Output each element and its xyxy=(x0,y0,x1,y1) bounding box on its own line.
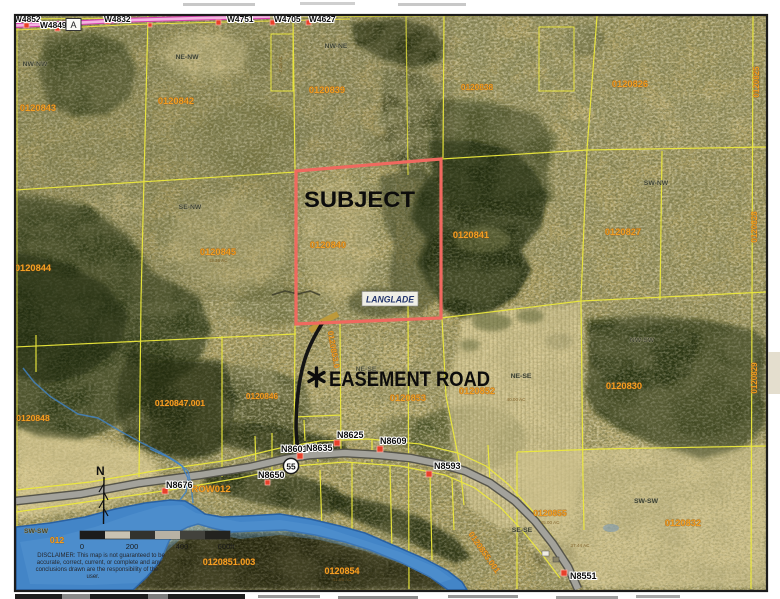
svg-text:37.44 AC: 37.44 AC xyxy=(571,543,591,548)
svg-text:0: 0 xyxy=(80,542,84,551)
svg-text:N: N xyxy=(96,464,105,478)
svg-text:NE-SE: NE-SE xyxy=(511,373,532,380)
svg-text:41.98 AC: 41.98 AC xyxy=(333,577,353,582)
svg-text:SW-SW: SW-SW xyxy=(24,528,49,535)
svg-text:2.28 AC: 2.28 AC xyxy=(278,55,283,72)
svg-text:0120851.003: 0120851.003 xyxy=(203,557,256,567)
svg-text:SUBJECT: SUBJECT xyxy=(304,187,415,212)
svg-text:0120854: 0120854 xyxy=(324,566,359,576)
svg-text:NE-NW: NE-NW xyxy=(175,54,199,61)
svg-text:N8601: N8601 xyxy=(281,444,308,454)
svg-text:NE-SE: NE-SE xyxy=(356,366,377,373)
svg-text:N8551: N8551 xyxy=(570,571,597,581)
svg-text:55: 55 xyxy=(286,462,296,472)
svg-text:0120838: 0120838 xyxy=(461,82,494,92)
svg-text:600ft: 600ft xyxy=(218,542,236,551)
svg-text:N8635: N8635 xyxy=(306,443,333,453)
svg-text:N8676: N8676 xyxy=(166,480,193,490)
svg-text:0120846: 0120846 xyxy=(246,391,279,401)
svg-text:0120848: 0120848 xyxy=(16,413,50,423)
svg-text:user.: user. xyxy=(86,574,99,580)
svg-text:NW-SW: NW-SW xyxy=(630,337,655,344)
svg-text:accurate, correct, current, or: accurate, correct, current, or complete … xyxy=(37,560,161,566)
svg-text:0120853: 0120853 xyxy=(390,393,426,403)
svg-text:SW-SW: SW-SW xyxy=(634,498,659,505)
svg-text:SW-NW: SW-NW xyxy=(644,180,669,187)
svg-text:40.00 AC: 40.00 AC xyxy=(507,397,527,402)
svg-text:0120830: 0120830 xyxy=(606,381,642,391)
svg-text:0120852: 0120852 xyxy=(459,386,495,396)
svg-text:43.36 AC: 43.36 AC xyxy=(209,258,229,263)
svg-text:0120843: 0120843 xyxy=(20,103,56,113)
svg-text:DISCLAIMER: This map is not gu: DISCLAIMER: This map is not guaranteed t… xyxy=(37,553,165,559)
svg-text:LANGLADE: LANGLADE xyxy=(366,295,415,306)
svg-text:0120826: 0120826 xyxy=(612,79,648,89)
svg-text:0120829: 0120829 xyxy=(750,362,759,394)
svg-text:012: 012 xyxy=(50,535,65,545)
svg-text:0120855: 0120855 xyxy=(533,508,567,518)
svg-text:conclusions drawn are the resp: conclusions drawn are the responsibility… xyxy=(36,567,159,573)
svg-text:0120844: 0120844 xyxy=(15,263,52,273)
svg-text:0120827: 0120827 xyxy=(605,227,641,237)
svg-text:0120845: 0120845 xyxy=(200,247,236,257)
svg-text:0120842: 0120842 xyxy=(158,96,194,106)
svg-text:0120847.001: 0120847.001 xyxy=(155,398,205,408)
svg-text:N8593: N8593 xyxy=(434,461,461,471)
svg-text:45.00 AC: 45.00 AC xyxy=(541,520,561,525)
svg-text:N8625: N8625 xyxy=(337,430,364,440)
svg-text:N8650: N8650 xyxy=(258,470,285,480)
svg-text:NW-NW: NW-NW xyxy=(23,61,48,68)
svg-text:SE-NW: SE-NW xyxy=(179,204,202,211)
svg-text:0120832: 0120832 xyxy=(665,518,701,528)
svg-text:0120828: 0120828 xyxy=(750,211,759,243)
svg-text:W4849: W4849 xyxy=(40,20,67,30)
svg-text:SE-SE: SE-SE xyxy=(512,527,533,534)
svg-text:0120839: 0120839 xyxy=(309,85,345,95)
svg-text:200: 200 xyxy=(126,542,139,551)
svg-text:N8609: N8609 xyxy=(380,436,407,446)
svg-text:0120825: 0120825 xyxy=(752,66,761,98)
svg-text:0120841: 0120841 xyxy=(453,230,489,240)
svg-text:0120840: 0120840 xyxy=(310,240,346,250)
svg-text:400: 400 xyxy=(176,542,189,551)
svg-text:A: A xyxy=(70,20,76,30)
svg-text:ROW012: ROW012 xyxy=(191,484,230,495)
svg-text:NW-NE: NW-NE xyxy=(325,43,348,50)
